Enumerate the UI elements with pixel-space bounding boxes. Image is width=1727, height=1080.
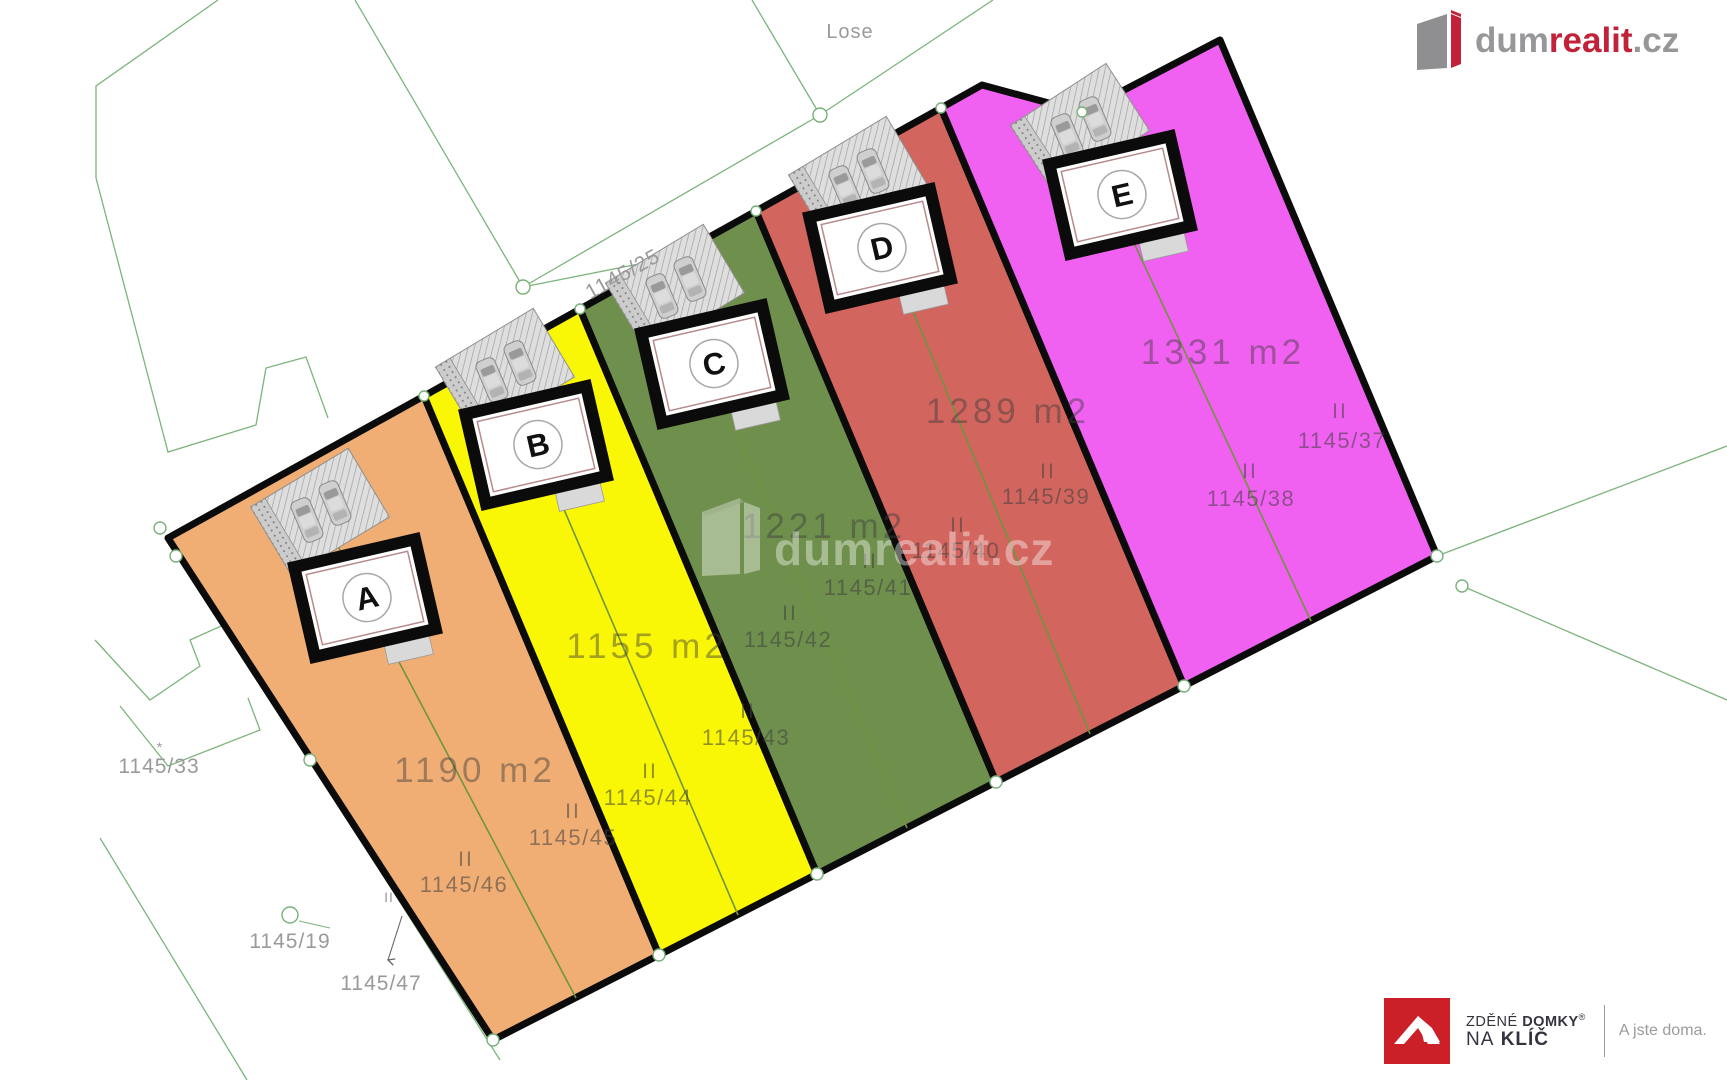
- logo-tagline: A jste doma.: [1619, 1022, 1707, 1040]
- parcel-label-1145-19: 1145/19: [249, 930, 330, 953]
- parcel-number-1145-46: 1145/46: [420, 872, 508, 897]
- floors-a-left: II: [458, 848, 474, 871]
- parcel-number-1145-41: 1145/41: [824, 575, 912, 600]
- parcel-number-1145-39: 1145/39: [1002, 484, 1090, 509]
- dumrealit-logo: dumrealit.cz: [1413, 10, 1679, 72]
- parcel-number-1145-45: 1145/45: [529, 825, 617, 850]
- parcel-label-1145-47: 1145/47: [340, 972, 421, 995]
- parcel-number-1145-43: 1145/43: [702, 725, 790, 750]
- cadastral-plan-svg: A B C D E: [0, 0, 1727, 1080]
- survey-marker-33: *: [157, 739, 163, 755]
- floors-d-left: II: [950, 514, 966, 537]
- floors-b-right: II: [740, 700, 756, 723]
- parcel-number-1145-38: 1145/38: [1207, 486, 1295, 511]
- floors-e-left: II: [1242, 460, 1258, 483]
- zdene-domky-logo: ZDĚNÉ DOMKY® NA KLÍČ A jste doma.: [1384, 998, 1707, 1064]
- logo-text-realit: realit: [1549, 21, 1633, 60]
- parcel-number-1145-40: 1145/40: [912, 538, 1000, 563]
- floors-c-right: II: [862, 550, 878, 573]
- dumrealit-logo-icon: [1413, 10, 1465, 72]
- parcel-number-1145-42: 1145/42: [744, 627, 832, 652]
- area-label-a: 1190 m2: [394, 751, 556, 790]
- zdene-domky-line1: ZDĚNÉ DOMKY®: [1466, 1013, 1586, 1030]
- area-label-e: 1331 m2: [1141, 333, 1305, 372]
- floors-e-right: II: [1332, 400, 1348, 423]
- parcel-number-1145-37: 1145/37: [1298, 428, 1386, 453]
- area-label-d: 1289 m2: [926, 392, 1090, 431]
- area-label-b: 1155 m2: [566, 627, 728, 666]
- parcel-number-1145-44: 1145/44: [604, 785, 692, 810]
- road-label-lose: Lose: [826, 21, 873, 43]
- logo-text-cz: .cz: [1633, 21, 1680, 60]
- parcel-label-1145-33: 1145/33: [118, 755, 199, 778]
- logo-divider: [1604, 1005, 1605, 1057]
- neighbor-building-outline-top: [96, 178, 328, 452]
- area-label-c: 1221 m2: [742, 507, 906, 546]
- floors-b-left: II: [642, 760, 658, 783]
- floors-c-left: II: [782, 602, 798, 625]
- label-arrow-1145-47: [388, 916, 402, 960]
- zdene-domky-line2: NA KLÍČ: [1466, 1030, 1586, 1050]
- site-plan-image: A B C D E: [0, 0, 1727, 1080]
- floors-d-right: II: [1040, 460, 1056, 483]
- zdene-domky-roof-icon: [1384, 998, 1450, 1064]
- floors-marker-47: II: [384, 889, 394, 905]
- logo-text-dum: dum: [1475, 21, 1549, 60]
- registered-mark: ®: [1579, 1012, 1586, 1022]
- floors-a-right: II: [565, 800, 581, 823]
